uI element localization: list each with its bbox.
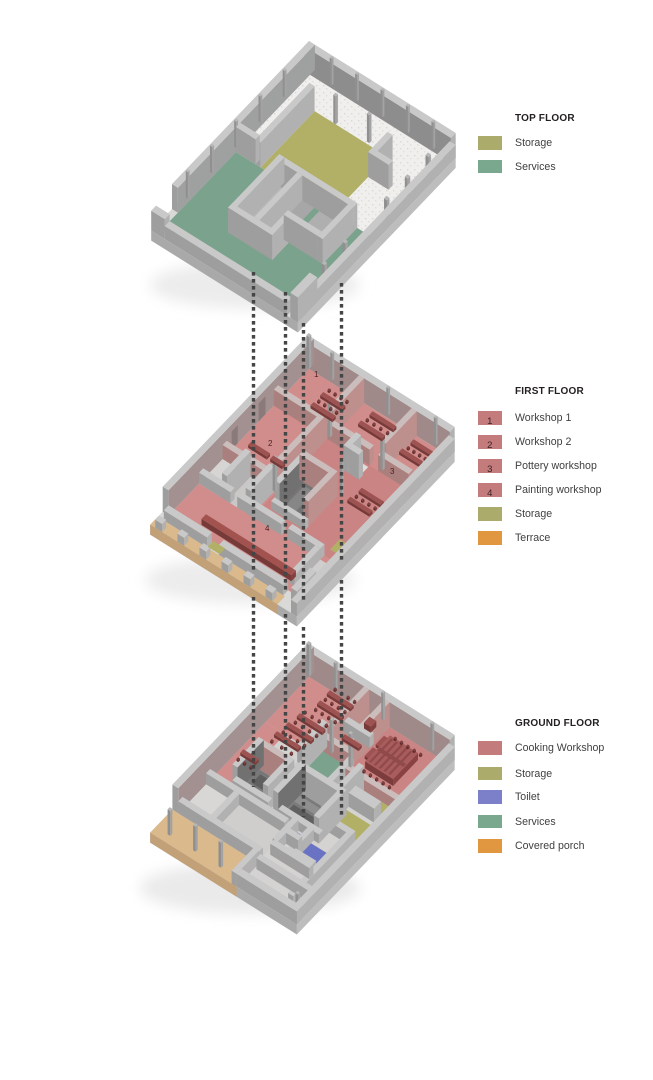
svg-text:3: 3 [390,467,395,476]
svg-text:4: 4 [265,524,270,533]
svg-text:2: 2 [268,439,273,448]
svg-text:1: 1 [314,370,319,379]
